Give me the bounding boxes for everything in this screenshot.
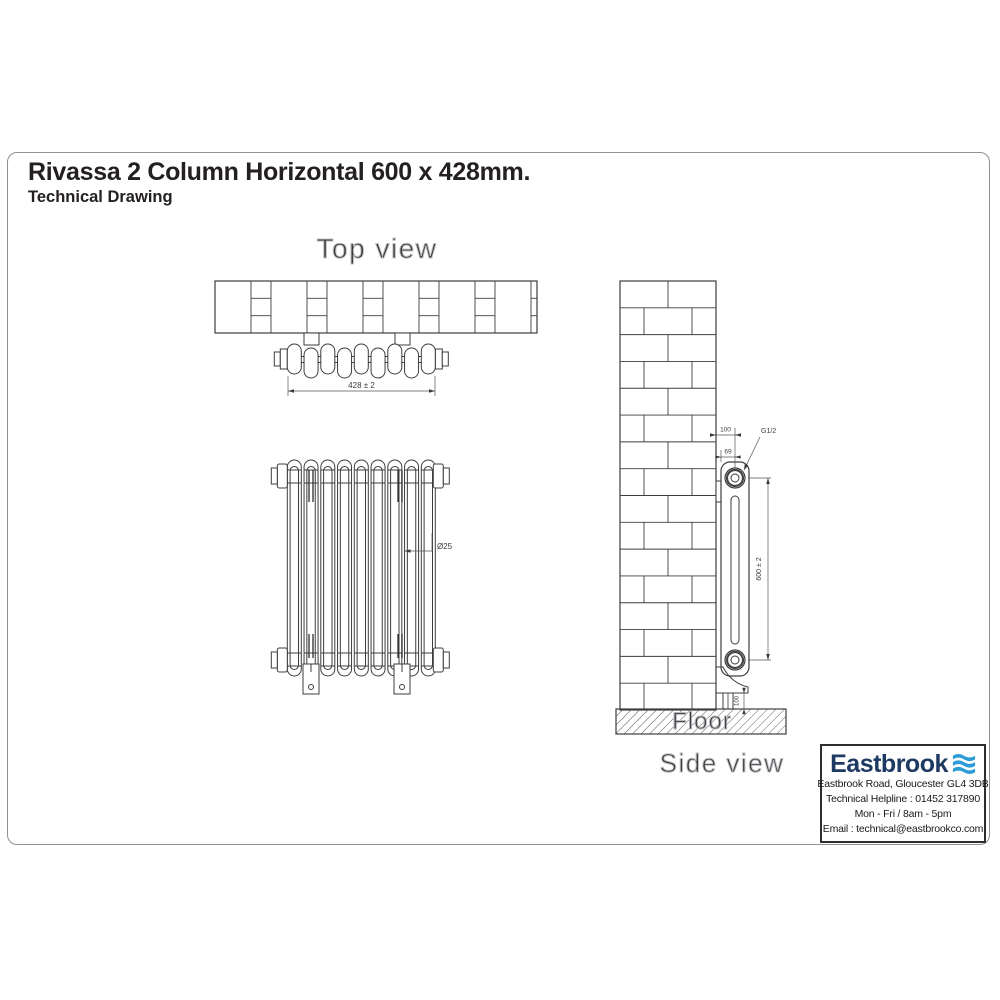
column-diameter-label: Ø25 (437, 542, 453, 551)
technical-drawing-sheet: Rivassa 2 Column Horizontal 600 x 428mm.… (0, 0, 1000, 1000)
company-email: Email : technical@eastbrookco.com (823, 822, 983, 837)
top-view: Top view (215, 233, 537, 396)
width-dimension-label: 428 ± 2 (348, 381, 375, 390)
top-view-label: Top view (317, 233, 438, 264)
top-view-radiator (274, 344, 448, 378)
side-view-label: Side view (660, 748, 785, 778)
side-view-radiator (716, 462, 749, 709)
company-helpline: Technical Helpline : 01452 317890 (826, 792, 980, 807)
eastbrook-waves-icon (952, 752, 976, 776)
height-dimension-label: 600 ± 2 (756, 557, 763, 580)
top-view-wall-brackets (304, 333, 410, 345)
company-logo-text: Eastbrook (830, 752, 948, 776)
floor-label: Floor (672, 708, 732, 735)
thread-label: G1/2 (761, 428, 776, 435)
front-view: Ø25 (271, 460, 452, 694)
wall-to-center-label: 100 (720, 427, 731, 434)
bracket-depth-label: 69 (724, 449, 732, 456)
company-address: Eastbrook Road, Gloucester GL4 3DB (817, 777, 988, 792)
side-view-wall-bracket (716, 481, 721, 502)
company-info-box: Eastbrook Eastbrook Road, Gloucester GL4… (820, 744, 986, 843)
side-view: Floor (616, 281, 786, 778)
company-logo: Eastbrook (830, 751, 976, 777)
top-view-wall (215, 281, 537, 333)
company-hours: Mon - Fri / 8am - 5pm (855, 807, 952, 822)
floor-clearance-label: 100 (735, 695, 741, 706)
technical-drawing: Top view (0, 0, 1000, 1000)
